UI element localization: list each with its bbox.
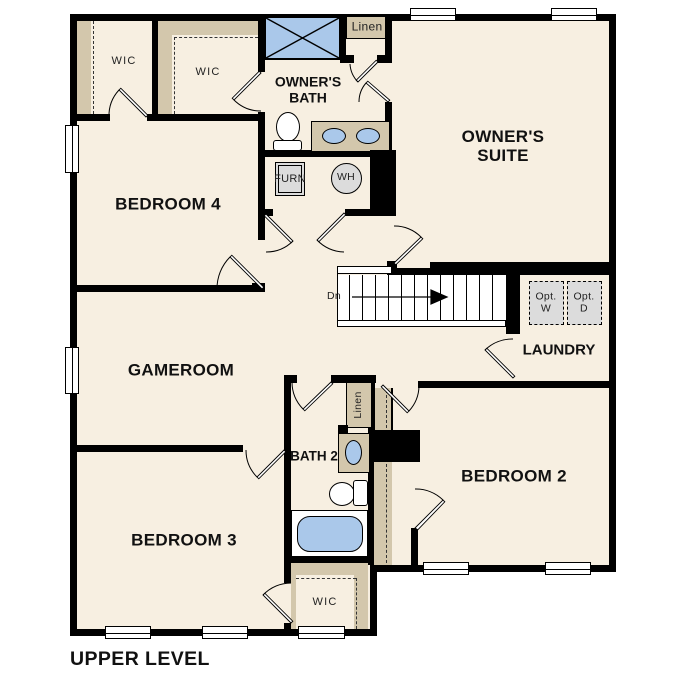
wic3-dash-h <box>296 578 356 579</box>
stair-tread <box>427 275 428 320</box>
wic2-label: WIC <box>196 66 221 78</box>
bedroom2-closet-top <box>375 388 391 430</box>
wall-below-wic-b <box>147 114 265 121</box>
wall-left <box>70 14 77 636</box>
wall-linen-east <box>385 14 392 56</box>
stair-tread <box>388 275 389 320</box>
window-suite-2 <box>551 8 597 21</box>
floor-plan: WIC WIC WIC Linen Linen OWNER'S BATH OWN… <box>0 0 687 687</box>
wall-mech-stub <box>345 209 370 216</box>
wall-wic-divider <box>152 14 158 120</box>
water-heater-label: WH <box>337 172 355 184</box>
wic1-shelf <box>77 21 91 114</box>
stair-rail-top <box>337 266 392 274</box>
wall-chase <box>370 150 396 216</box>
wall-tub-south <box>291 556 368 563</box>
wall-closet-door-stub <box>411 528 418 565</box>
linen-upper-label: Linen <box>352 20 383 33</box>
opt-dryer-label: Opt. D <box>571 291 597 315</box>
stair-tread <box>349 275 350 320</box>
bath2-label: BATH 2 <box>290 448 338 463</box>
wall-step <box>370 565 377 636</box>
wall-right <box>609 14 616 572</box>
stair-tread <box>466 275 467 320</box>
window-bedroom3-2 <box>202 626 248 639</box>
wall-laundry-south <box>418 381 616 388</box>
bathtub <box>297 516 363 552</box>
wall-below-wic-a <box>70 114 110 121</box>
wic2-shelf-top <box>158 21 258 35</box>
wall-bath2-west-a <box>284 375 291 583</box>
wall-closet-nook <box>391 388 393 433</box>
wic1-dashed-line <box>93 21 94 114</box>
stair-tread <box>453 275 454 320</box>
stair-dn-label: Dn <box>327 291 341 303</box>
laundry-label: LAUNDRY <box>523 343 596 360</box>
plan-title: UPPER LEVEL <box>70 648 210 671</box>
bedroom2-closet-dash-a <box>386 390 387 428</box>
window-wic3 <box>298 626 345 639</box>
stair-rail-bottom <box>337 320 506 327</box>
sink-left <box>322 128 346 144</box>
linen-lower-label: Linen <box>353 391 365 418</box>
stair-tread <box>440 275 441 320</box>
staircase <box>338 275 506 320</box>
window-bedroom2-1 <box>423 562 469 575</box>
wall-vestibule-b <box>377 55 392 63</box>
stair-tread <box>362 275 363 320</box>
wall-suite-south-lower <box>389 268 616 275</box>
wic1-label: WIC <box>112 55 137 67</box>
opt-washer-label: Opt. W <box>533 291 559 315</box>
wall-gameroom-stub <box>252 283 265 292</box>
bedroom2-label: BEDROOM 2 <box>461 466 567 485</box>
wall-bedroom4-stub <box>265 209 273 216</box>
window-bedroom4 <box>65 125 79 173</box>
stair-tread <box>414 275 415 320</box>
window-suite-1 <box>410 8 456 21</box>
window-gameroom <box>65 347 79 394</box>
window-bedroom3-1 <box>105 626 151 639</box>
stair-tread <box>375 275 376 320</box>
toilet-owners-base <box>273 140 302 151</box>
gameroom-label: GAMEROOM <box>128 360 234 379</box>
wall-bedroom3-north <box>70 445 243 452</box>
sink-bath2 <box>345 440 362 465</box>
toilet-bath2-tank <box>353 480 368 506</box>
toilet-owners-bowl <box>276 112 300 142</box>
stair-tread <box>401 275 402 320</box>
bedroom3-label: BEDROOM 3 <box>131 530 237 549</box>
wall-chase-bedroom2 <box>374 430 420 462</box>
wall-gameroom-north <box>70 285 265 292</box>
owners-suite-label: OWNER'S SUITE <box>448 127 558 165</box>
owners-bath-label: OWNER'S BATH <box>262 74 354 105</box>
bedroom2-closet-dash-b <box>386 464 387 563</box>
wall-stair-east <box>506 268 520 334</box>
window-bedroom2-2 <box>545 562 591 575</box>
wic2-dashed-line-h <box>174 37 258 38</box>
stair-tread <box>492 275 493 320</box>
sink-right <box>356 128 380 144</box>
wic3-label: WIC <box>313 596 338 608</box>
bedroom2-closet-shelf <box>374 462 392 565</box>
wic2-shelf-left <box>158 35 172 114</box>
stair-tread <box>479 275 480 320</box>
wall-linen2-stub <box>338 425 348 433</box>
wic3-dash-v <box>356 578 357 629</box>
shower <box>264 16 341 60</box>
furnace-label: FURN <box>274 173 306 185</box>
wall-bath2-west-b <box>284 623 291 636</box>
wall-vestibule-a <box>340 55 354 63</box>
wall-bedroom4-east <box>258 114 265 240</box>
wic2-dashed-line-v <box>174 37 175 114</box>
bedroom4-label: BEDROOM 4 <box>115 194 221 213</box>
toilet-bath2-bowl <box>329 482 355 506</box>
